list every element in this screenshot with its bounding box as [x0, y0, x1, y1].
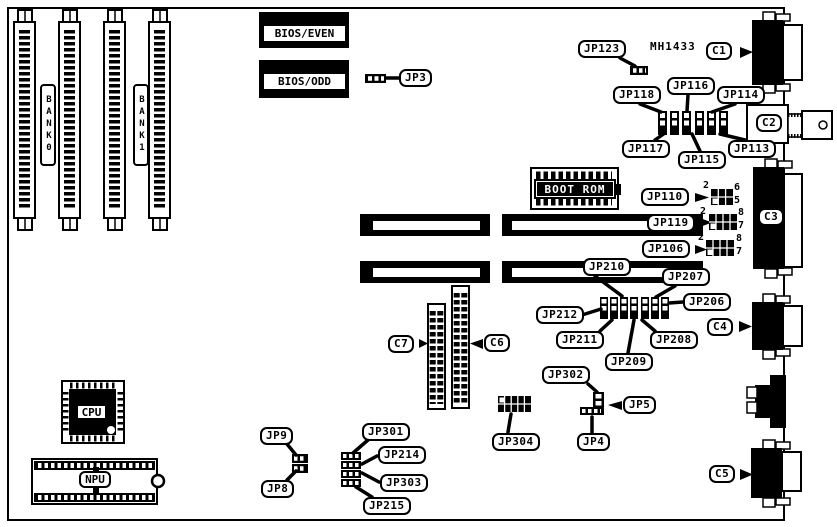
callout-c6: C6 [484, 334, 510, 352]
callout-jp302: JP302 [542, 366, 590, 384]
pin-label-jp119-2: 2 [700, 207, 706, 217]
callout-jp207: JP207 [662, 268, 710, 286]
callout-jp209: JP209 [605, 353, 653, 371]
callout-jp115: JP115 [678, 151, 726, 169]
pin-label-jp106-8: 8 [736, 234, 742, 244]
callout-jp211: JP211 [556, 331, 604, 349]
callout-jp304: JP304 [492, 433, 540, 451]
callout-jp3: JP3 [399, 69, 432, 87]
callout-jp210: JP210 [583, 258, 631, 276]
callout-jp118: JP118 [613, 86, 661, 104]
callout-jp206: JP206 [683, 293, 731, 311]
bank0-label: BANK0 [40, 84, 56, 166]
callout-c4: C4 [707, 318, 733, 336]
callout-jp116: JP116 [667, 77, 715, 95]
callout-jp117: JP117 [622, 140, 670, 158]
callout-c2: C2 [756, 114, 782, 132]
boot-rom-label: BOOT ROM [536, 181, 614, 197]
callout-c5: C5 [709, 465, 735, 483]
callout-c7: C7 [388, 335, 414, 353]
pin-label-jp110-6: 6 [734, 183, 740, 193]
pin-label-jp119-8: 8 [738, 208, 744, 218]
npu-label: NPU [79, 471, 111, 488]
simm-socket-2 [59, 10, 80, 230]
bank1-label: BANK1 [133, 84, 149, 166]
callout-jp303: JP303 [380, 474, 428, 492]
callout-jp214: JP214 [378, 446, 426, 464]
callout-c3: C3 [758, 208, 784, 226]
expansion-slot-row-2 [360, 261, 703, 283]
simm-socket-3 [104, 10, 125, 230]
callout-jp5: JP5 [623, 396, 656, 414]
callout-jp212: JP212 [536, 306, 584, 324]
bios-even-label: BIOS/EVEN [262, 24, 347, 43]
callout-jp9: JP9 [260, 427, 293, 445]
callout-jp123: JP123 [578, 40, 626, 58]
callout-jp8: JP8 [261, 480, 294, 498]
callout-jp301: JP301 [362, 423, 410, 441]
pin-label-jp110-5: 5 [734, 196, 740, 206]
simm-socket-1 [14, 10, 35, 230]
board-model-text: MH1433 [650, 40, 696, 53]
callout-jp106: JP106 [642, 240, 690, 258]
motherboard-jumper-diagram: MH1433 BANK0 BANK1 BIOS/EVEN BIOS/ODD BO… [0, 0, 837, 527]
pin-label-jp106-7: 7 [736, 247, 742, 257]
callout-jp119: JP119 [647, 214, 695, 232]
pin-label-jp110-2: 2 [703, 181, 709, 191]
callout-jp208: JP208 [650, 331, 698, 349]
bnc-center-pin [819, 121, 827, 129]
callout-jp215: JP215 [363, 497, 411, 515]
bios-odd-label: BIOS/ODD [262, 72, 347, 91]
cpu-label: CPU [76, 404, 107, 420]
callout-jp110: JP110 [641, 188, 689, 206]
pin-label-jp119-7: 7 [738, 221, 744, 231]
callout-jp113: JP113 [728, 140, 776, 158]
callout-c1: C1 [706, 42, 732, 60]
callout-jp114: JP114 [717, 86, 765, 104]
simm-socket-4 [149, 10, 170, 230]
callout-jp4: JP4 [577, 433, 610, 451]
pin-label-jp106-2: 2 [698, 233, 704, 243]
